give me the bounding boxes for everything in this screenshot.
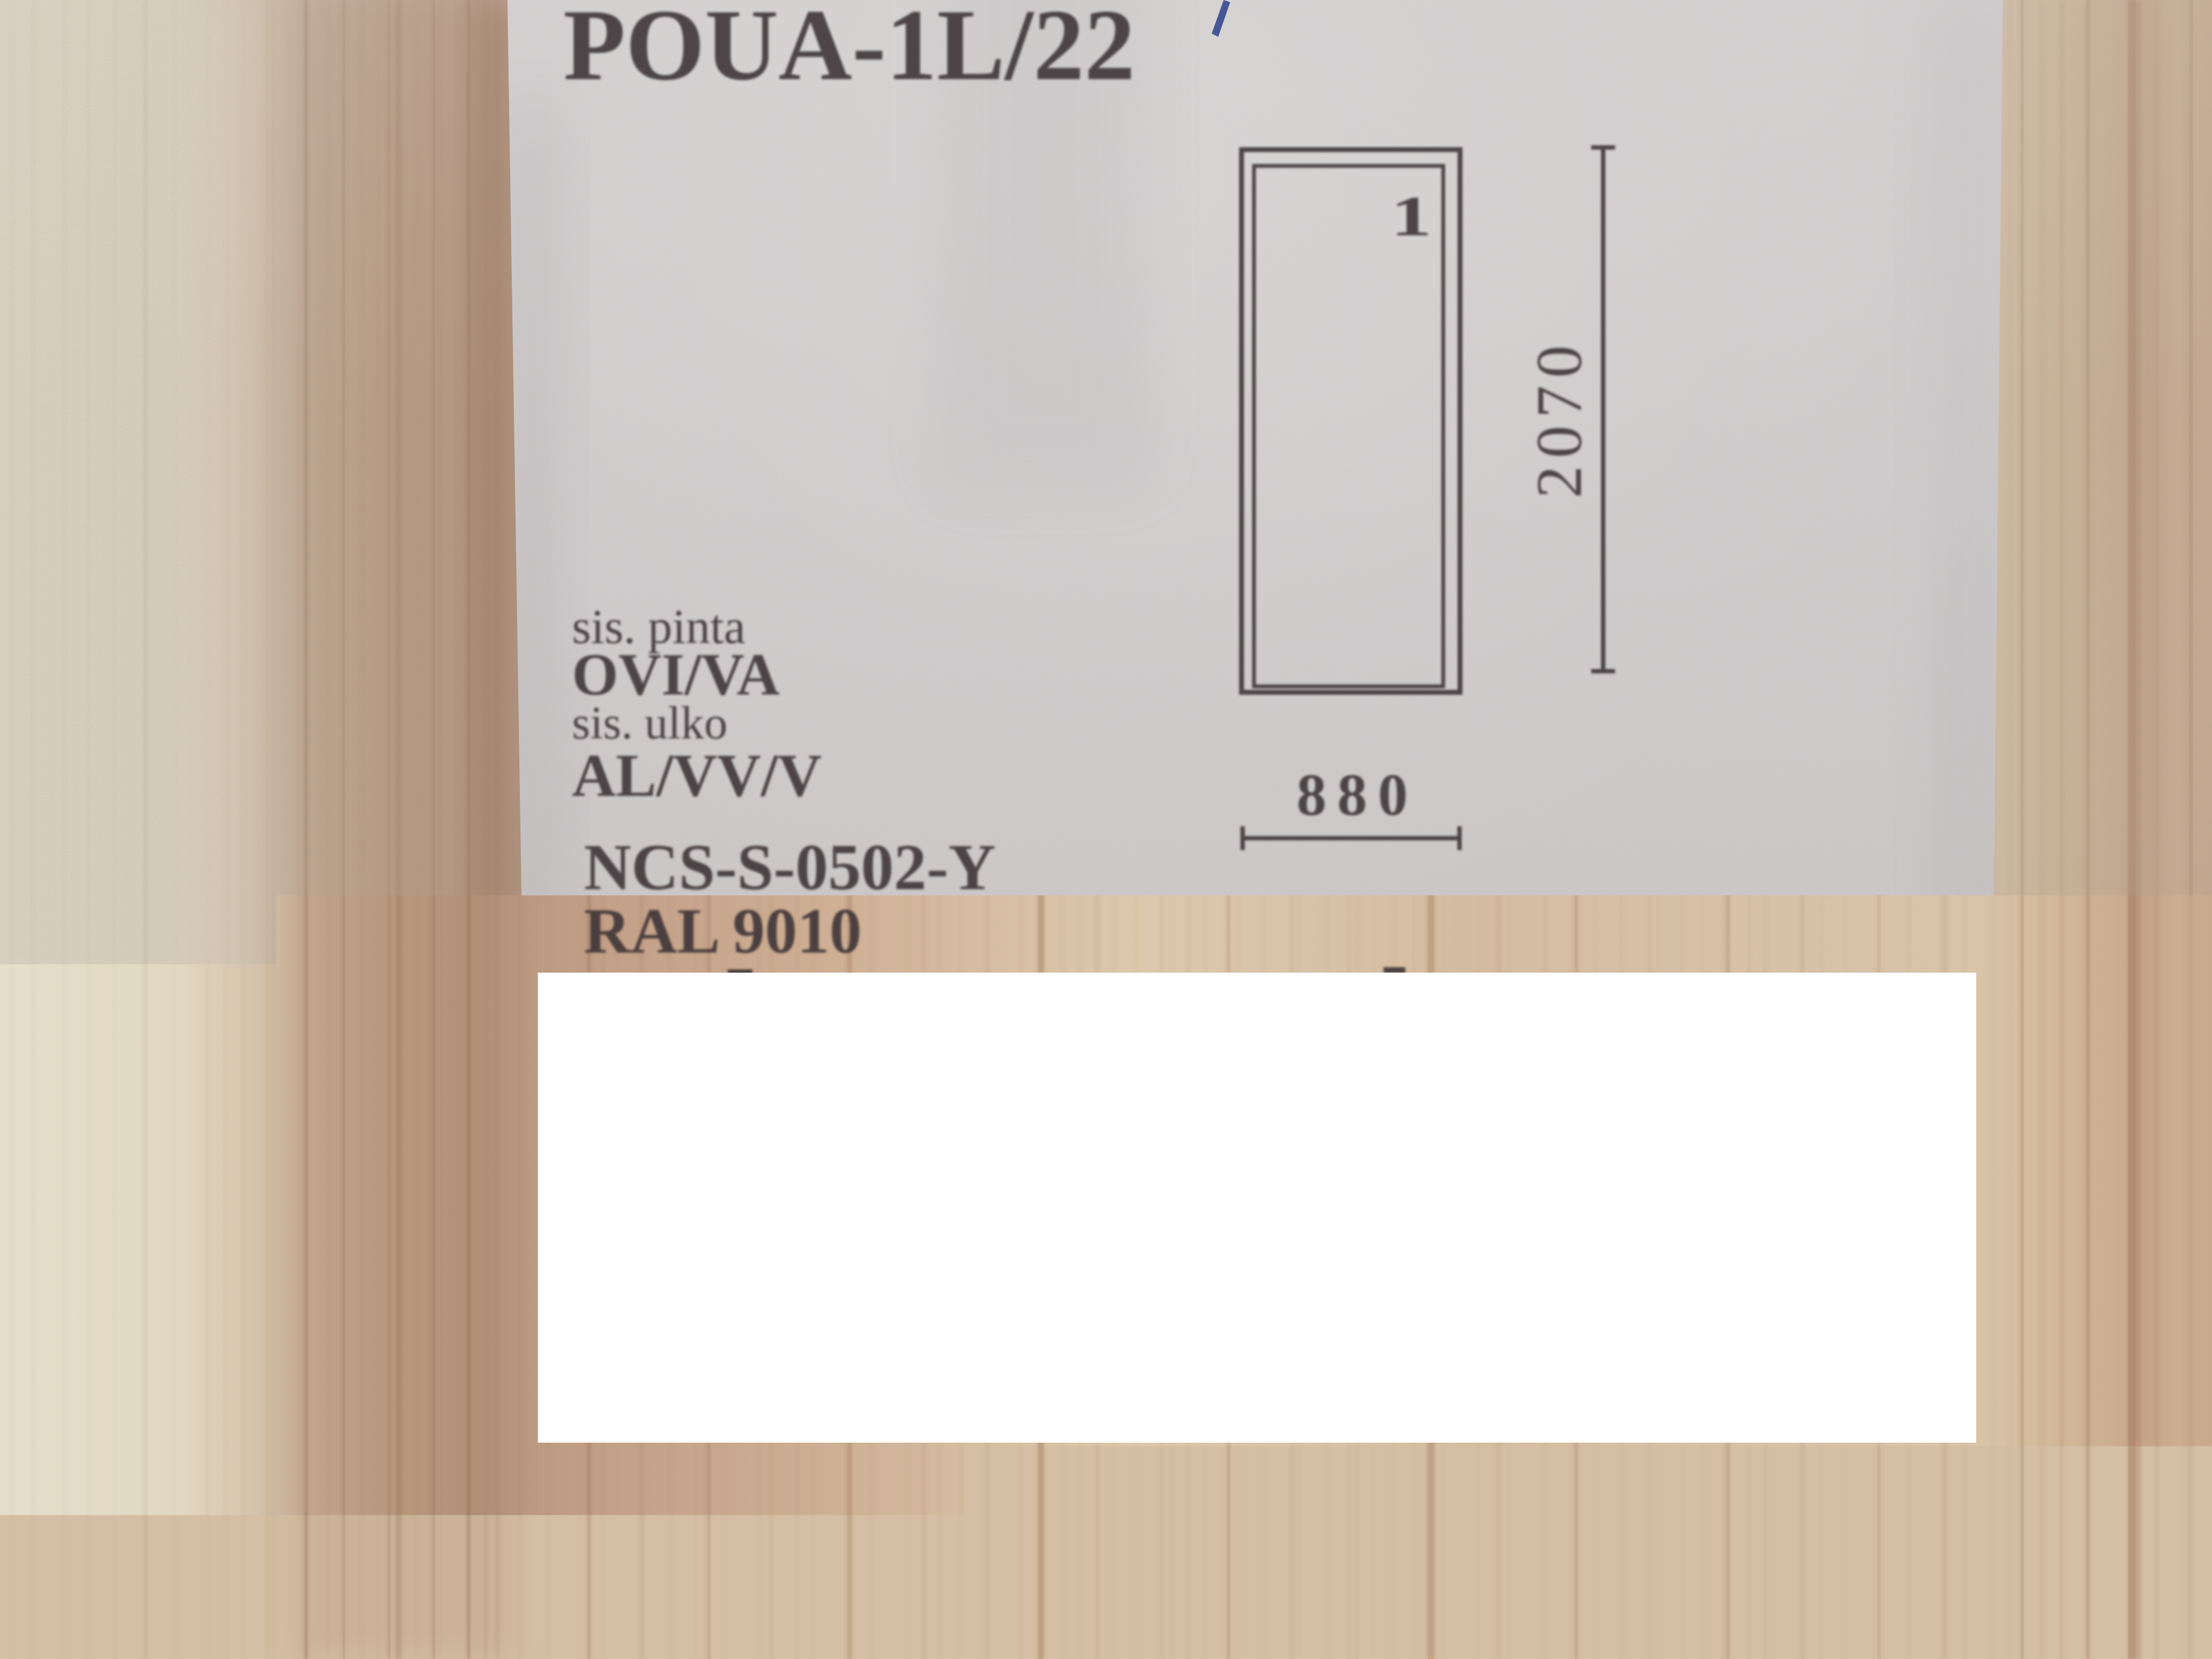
svg-text:RAL 9010: RAL 9010 [584, 895, 861, 967]
svg-text:NCS-S-0502-Y: NCS-S-0502-Y [584, 831, 996, 904]
svg-text:sis. ulko: sis. ulko [572, 697, 728, 749]
svg-text:POUA-1L/22: POUA-1L/22 [563, 0, 1135, 101]
svg-text:1: 1 [1391, 185, 1432, 248]
svg-text:AL/VV/V: AL/VV/V [572, 742, 821, 809]
svg-text:880: 880 [1297, 762, 1419, 828]
svg-text:2070: 2070 [1523, 338, 1595, 498]
